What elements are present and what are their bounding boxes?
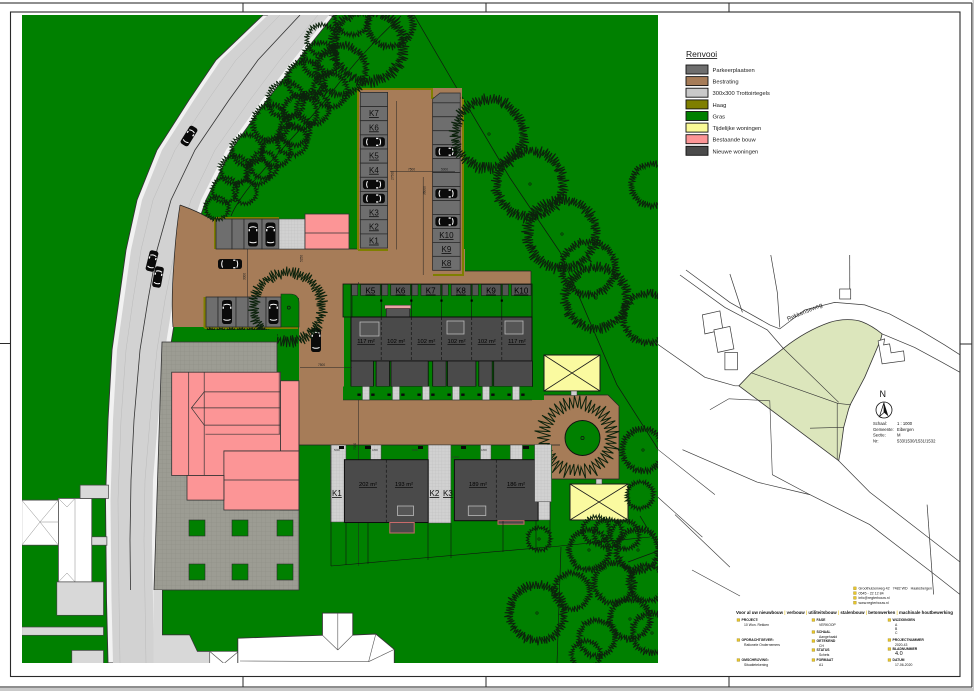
svg-text:Groothuizenweg 42 7482 WD: Groothuizenweg 42 7482 WD Haaksbergen bbox=[859, 587, 933, 591]
svg-text:4.0: 4.0 bbox=[895, 651, 903, 657]
svg-text:0545 - 22 12 84: 0545 - 22 12 84 bbox=[859, 591, 884, 595]
svg-text:7500: 7500 bbox=[408, 168, 415, 172]
svg-text:5000: 5000 bbox=[441, 168, 448, 172]
svg-text:VERKOOP: VERKOOP bbox=[819, 623, 837, 627]
svg-text:102 m²: 102 m² bbox=[447, 339, 465, 345]
svg-text:1800: 1800 bbox=[372, 448, 378, 452]
svg-text:Eibergen: Eibergen bbox=[897, 427, 914, 432]
svg-text:17-06-2020: 17-06-2020 bbox=[895, 663, 912, 667]
svg-text:Situatietekening: Situatietekening bbox=[744, 663, 768, 667]
svg-text:K10: K10 bbox=[514, 287, 529, 296]
svg-text:Gemeente:: Gemeente: bbox=[873, 427, 894, 432]
svg-text:202 m²: 202 m² bbox=[359, 482, 377, 488]
svg-text:14600: 14600 bbox=[452, 455, 460, 459]
svg-text:K3: K3 bbox=[369, 208, 379, 217]
svg-text:117 m²: 117 m² bbox=[508, 339, 526, 345]
svg-text:K4: K4 bbox=[369, 166, 379, 175]
svg-text:189 m²: 189 m² bbox=[469, 482, 487, 488]
svg-text:K2: K2 bbox=[430, 489, 440, 498]
svg-text:117 m²: 117 m² bbox=[357, 339, 375, 345]
svg-text:K8: K8 bbox=[442, 259, 452, 268]
svg-text:Rationele Ondernemers: Rationele Ondernemers bbox=[744, 643, 780, 647]
svg-text:5250: 5250 bbox=[300, 255, 304, 262]
svg-text:3000: 3000 bbox=[243, 273, 247, 280]
svg-text:7000: 7000 bbox=[353, 443, 357, 450]
svg-text:WIJZIGINGEN: WIJZIGINGEN bbox=[893, 618, 916, 622]
svg-text:K1: K1 bbox=[332, 489, 342, 498]
svg-text:Gras: Gras bbox=[713, 115, 726, 121]
svg-text:K7: K7 bbox=[369, 109, 379, 118]
svg-text:PROJECT:: PROJECT: bbox=[742, 618, 759, 622]
svg-text:K7: K7 bbox=[426, 287, 436, 296]
svg-text:M: M bbox=[897, 433, 901, 438]
svg-text:Parkeerplaatsen: Parkeerplaatsen bbox=[713, 68, 755, 74]
svg-text:Nieuwe woningen: Nieuwe woningen bbox=[713, 149, 759, 155]
svg-text:PROJECTNUMMER: PROJECTNUMMER bbox=[893, 638, 925, 642]
svg-text:Nr:: Nr: bbox=[873, 438, 879, 443]
svg-text:K5: K5 bbox=[369, 152, 379, 161]
svg-text:5000: 5000 bbox=[412, 448, 418, 452]
svg-text:K5: K5 bbox=[366, 287, 376, 296]
svg-text:K8: K8 bbox=[456, 287, 466, 296]
svg-text:Sectie:: Sectie: bbox=[873, 433, 886, 438]
svg-text:K6: K6 bbox=[396, 287, 406, 296]
svg-text:Voor al uw nieuwbouw | verbou: Voor al uw nieuwbouw | verbouw | utilite… bbox=[736, 610, 953, 615]
svg-text:FASE: FASE bbox=[817, 618, 827, 622]
svg-text:K9: K9 bbox=[486, 287, 496, 296]
svg-text:102 m²: 102 m² bbox=[387, 339, 405, 345]
svg-text:A1: A1 bbox=[819, 663, 823, 667]
svg-text:SCHAAL: SCHAAL bbox=[817, 630, 831, 634]
svg-text:K10: K10 bbox=[439, 231, 454, 240]
svg-text:Bestrating: Bestrating bbox=[713, 80, 739, 86]
svg-text:102 m²: 102 m² bbox=[417, 339, 435, 345]
svg-text:7500: 7500 bbox=[318, 363, 325, 367]
svg-text:193 m²: 193 m² bbox=[395, 482, 413, 488]
svg-text:STATUS: STATUS bbox=[817, 648, 831, 652]
svg-text:K2: K2 bbox=[369, 222, 379, 231]
svg-text:Renvooi: Renvooi bbox=[686, 49, 717, 59]
svg-text:K1: K1 bbox=[369, 237, 379, 246]
svg-text:OPDRACHTGEVER:: OPDRACHTGEVER: bbox=[742, 638, 774, 642]
svg-text:Bestaande bouw: Bestaande bouw bbox=[713, 138, 757, 144]
svg-text:102 m²: 102 m² bbox=[478, 339, 496, 345]
svg-text:GETEKEND: GETEKEND bbox=[817, 639, 836, 643]
svg-text:27500: 27500 bbox=[391, 171, 395, 180]
svg-text:1 : 1000: 1 : 1000 bbox=[897, 421, 913, 426]
svg-text:OMSCHRIJVING:: OMSCHRIJVING: bbox=[742, 658, 769, 662]
svg-text:info@regterbouw.nl: info@regterbouw.nl bbox=[859, 596, 890, 600]
svg-text:FORMAAT: FORMAAT bbox=[817, 658, 835, 662]
svg-text:36000: 36000 bbox=[423, 186, 427, 195]
svg-text:N: N bbox=[880, 389, 887, 399]
svg-text:5000: 5000 bbox=[334, 448, 340, 452]
svg-text:K3: K3 bbox=[443, 489, 453, 498]
svg-text:www.regterbouw.nl: www.regterbouw.nl bbox=[859, 601, 889, 605]
svg-text:Haag: Haag bbox=[713, 103, 727, 109]
svg-text:300x300 Trottoirtegels: 300x300 Trottoirtegels bbox=[713, 91, 770, 97]
svg-text:186 m²: 186 m² bbox=[507, 482, 525, 488]
svg-text:K6: K6 bbox=[369, 123, 379, 132]
svg-text:Schets: Schets bbox=[819, 653, 830, 657]
svg-text:Tijdelijke woningen: Tijdelijke woningen bbox=[713, 126, 762, 132]
svg-text:1800: 1800 bbox=[481, 448, 487, 452]
svg-text:533/1530/1531/1532: 533/1530/1531/1532 bbox=[897, 438, 936, 443]
svg-text:Schaal:: Schaal: bbox=[873, 421, 887, 426]
svg-text:K9: K9 bbox=[442, 245, 452, 254]
svg-text:DATUM: DATUM bbox=[893, 658, 905, 662]
svg-text:10 Won. Rekken: 10 Won. Rekken bbox=[744, 623, 769, 627]
